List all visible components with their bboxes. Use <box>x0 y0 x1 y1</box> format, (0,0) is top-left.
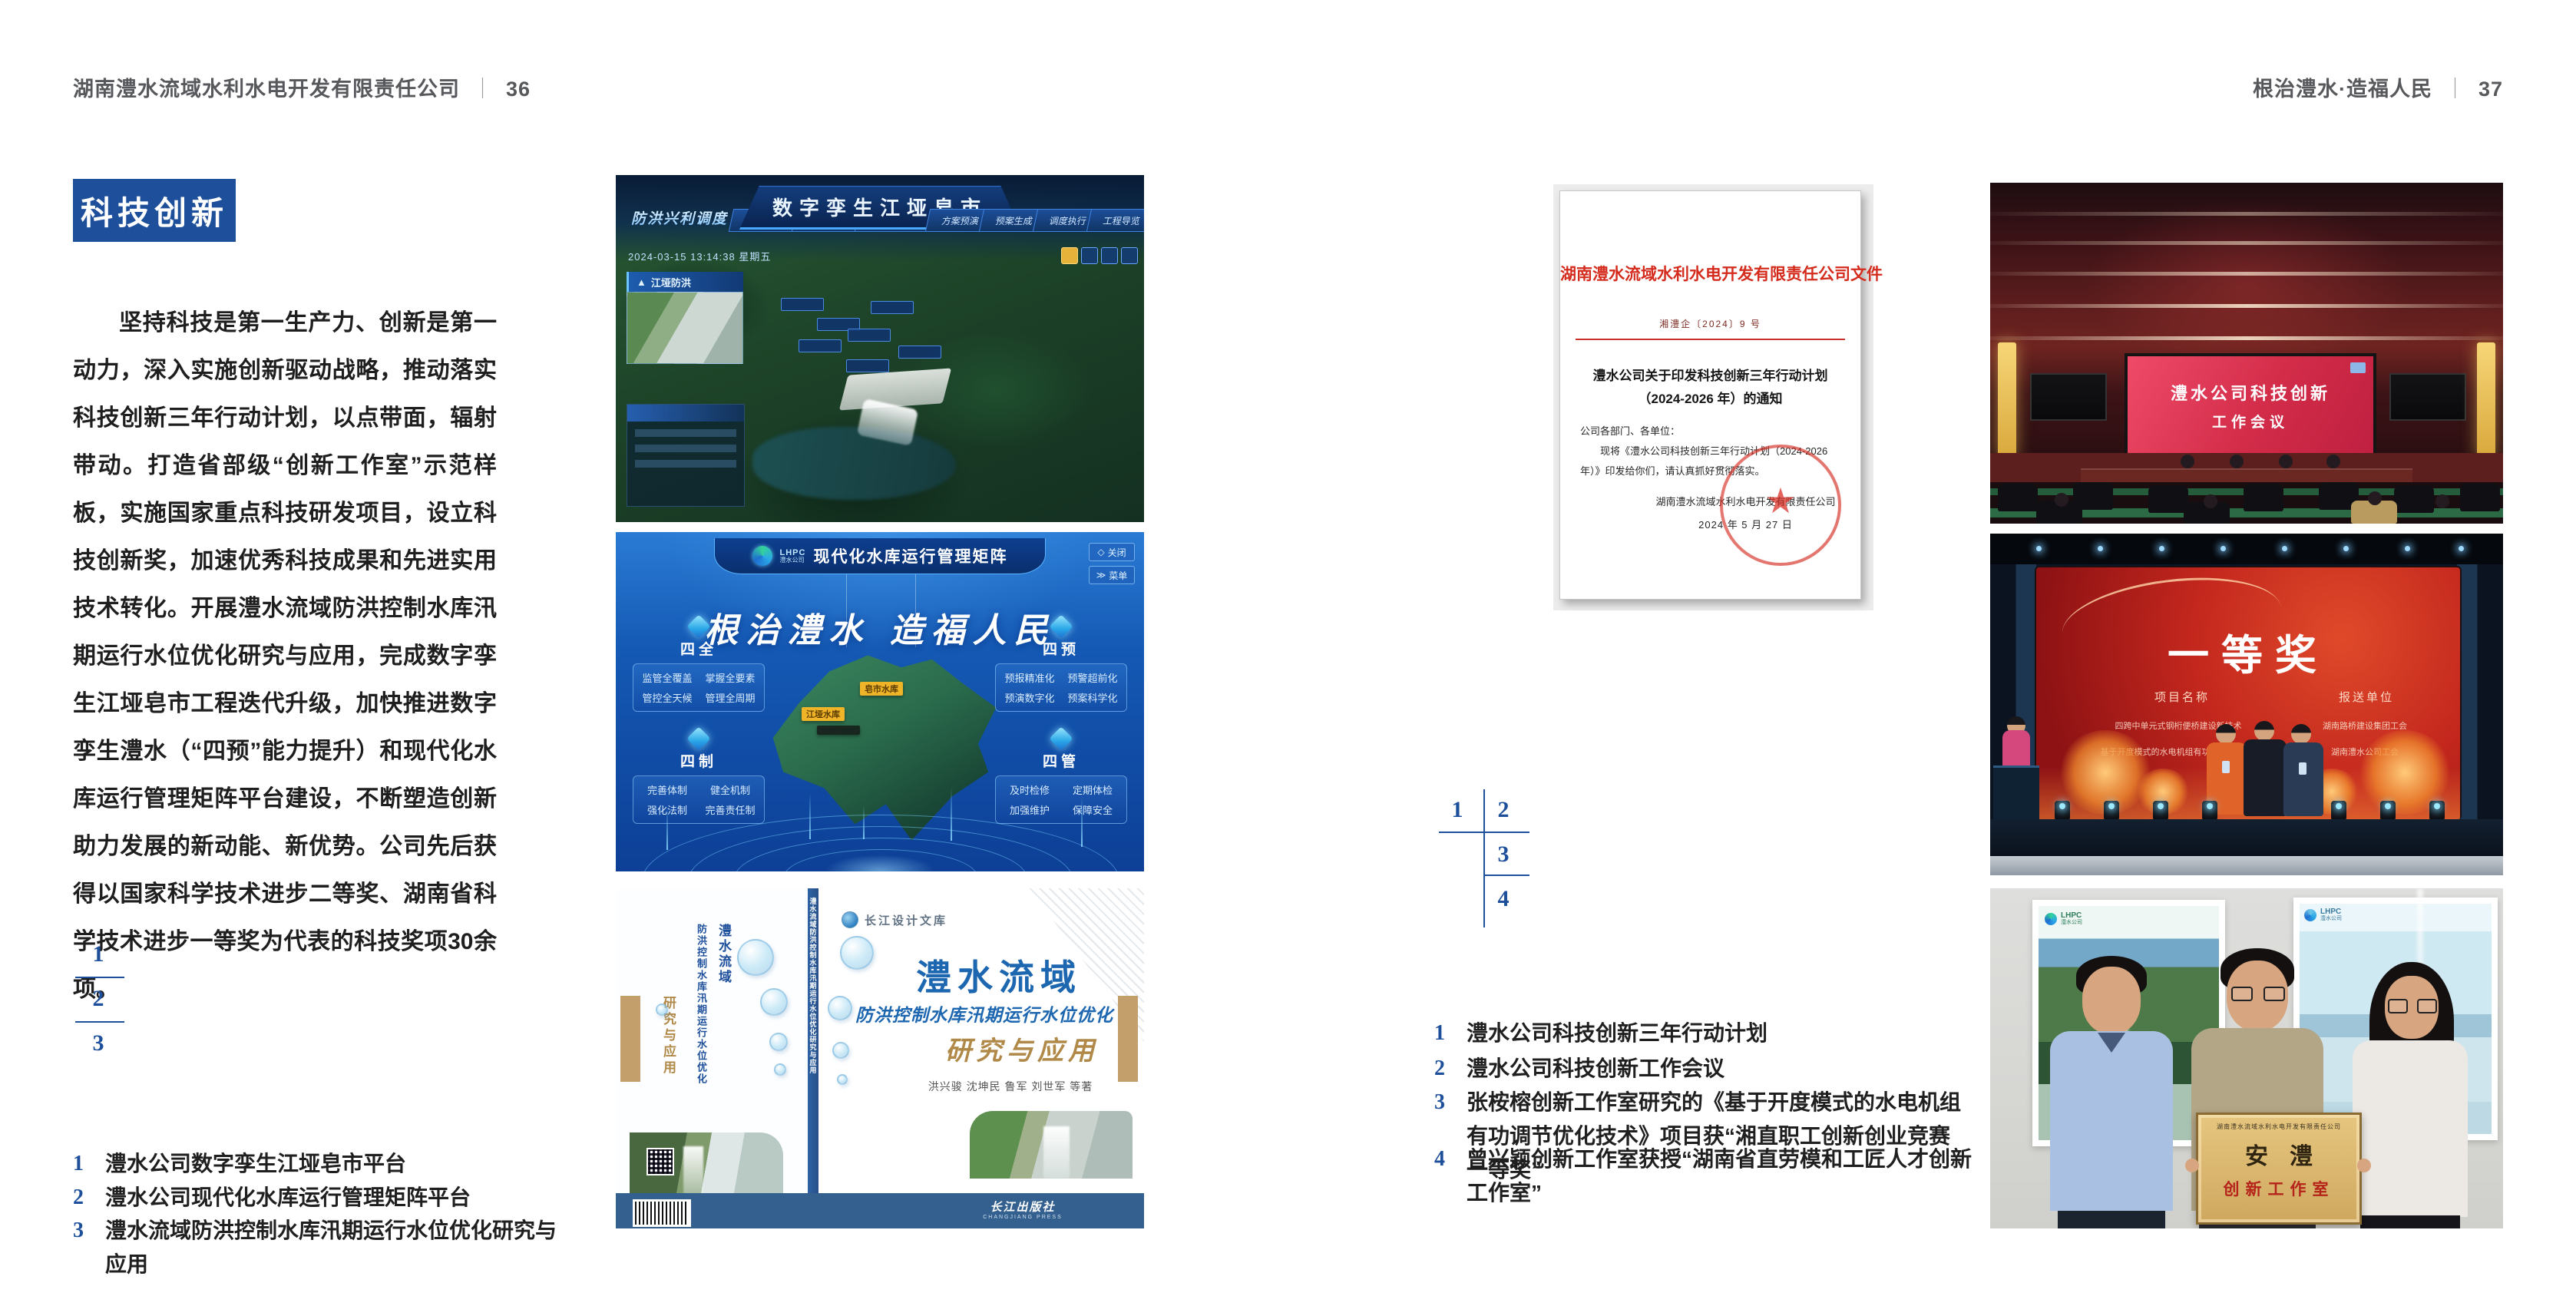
caption-text: 澧水公司科技创新工作会议 <box>1467 1052 1724 1086</box>
panelist-head <box>2279 455 2293 468</box>
stage-light <box>2098 546 2103 551</box>
series-name: 长江设计文库 <box>865 912 947 928</box>
card-item: 预报精准化 <box>999 670 1060 685</box>
logo-cn: 澧水公司 <box>2320 916 2342 921</box>
logo-en: LHPC <box>2320 908 2342 916</box>
stage-light <box>2405 546 2410 551</box>
caption-row: 3 澧水流域防洪控制水库汛期运行水位优化研究与应用 <box>73 1214 564 1281</box>
info-panel <box>627 404 745 507</box>
stage-light <box>2282 546 2287 551</box>
card-item: 完善责任制 <box>699 802 761 817</box>
matrix-card-siquan: 四全 监管全覆盖 掌握全要素 管控全天候 管理全周期 <box>633 618 765 712</box>
caption-number: 2 <box>73 1181 96 1215</box>
data-row <box>635 460 736 468</box>
photo-award-ceremony: 一等奖 项目名称 报送单位 四跨中单元式钢桁便桥建设新技术 湖南路桥建设集团工会… <box>1990 534 2503 875</box>
layers-icon <box>1081 247 1098 264</box>
index-divider-line <box>75 977 124 978</box>
card-title: 四制 <box>633 750 765 771</box>
floor-light-fixture <box>2429 801 2445 821</box>
audience-head <box>2368 491 2382 505</box>
water-droplet <box>828 996 852 1020</box>
book-back-cover: 澧水流域 防洪控制水库汛期运行水位优化 研究与应用 <box>616 888 808 1228</box>
water-droplet <box>760 988 788 1016</box>
user-icon <box>1061 247 1078 264</box>
map-marker <box>848 329 891 342</box>
card-item: 保障安全 <box>1062 802 1123 817</box>
water-droplet <box>832 1042 849 1059</box>
map-marker <box>846 359 889 372</box>
person-skirt <box>2360 1215 2460 1228</box>
person-trousers <box>2058 1211 2165 1228</box>
book-title-sub: 防洪控制水库汛期运行水位优化 <box>831 1000 1138 1027</box>
glasses-icon <box>2264 987 2285 1001</box>
floor-light-fixture <box>2380 801 2396 821</box>
matrix-card-siguan: 四管 及时检修 定期体检 加强维护 保障安全 <box>995 730 1127 824</box>
card-title: 四全 <box>633 638 765 659</box>
figure-index-3: 3 <box>83 1030 114 1056</box>
water-droplet <box>837 1074 848 1085</box>
matrix-card-siyu: 四预 预报精准化 预警超前化 预演数字化 预案科学化 <box>995 618 1127 712</box>
card-item: 预演数字化 <box>999 690 1060 705</box>
floor-light-fixture <box>2153 801 2168 821</box>
screen-title-line1: 澧水公司科技创新 <box>2171 380 2330 405</box>
panel-header: ▲江垭防洪 <box>627 272 743 292</box>
figure-digital-twin-platform: 防洪兴利调度 实时监测 洪水预报 防洪预警 数字孪生江垭皂市 方案预演 预案生成… <box>616 175 1144 522</box>
audience-chair <box>2148 485 2188 513</box>
cube-icon <box>1049 614 1073 638</box>
book-spread: 湖南澧水流域水利水电开发有限责任公司｜36 根治澧水·造福人民｜37 科技创新 … <box>0 0 2576 1306</box>
figure-index-4: 4 <box>1488 886 1519 912</box>
mode-label: 防洪兴利调度 <box>631 207 728 228</box>
light-pillar <box>809 793 811 839</box>
plaque-header: 湖南澧水流域水利水电开发有限责任公司 <box>2198 1122 2359 1131</box>
stage-floor <box>1990 819 2503 858</box>
column-header: 报送单位 <box>2282 689 2451 705</box>
caption-text: 澧水公司科技创新三年行动计划 <box>1467 1017 1767 1050</box>
floor-light-fixture <box>2104 801 2119 821</box>
stage-apron <box>1990 856 2503 875</box>
company-name: 湖南澧水流域水利水电开发有限责任公司 <box>73 78 460 101</box>
close-label: 关闭 <box>1108 546 1126 559</box>
map-marker <box>799 339 842 352</box>
light-pillar <box>666 807 668 850</box>
company-logo-icon <box>2045 913 2057 925</box>
header-divider: ｜ <box>2445 78 2466 101</box>
audience-head <box>2435 494 2449 508</box>
dam-thumbnail <box>627 292 743 364</box>
map-marker <box>781 298 824 311</box>
document-number: 湘澧企〔2024〕9 号 <box>1560 317 1860 330</box>
water-droplet <box>769 1033 788 1051</box>
caption-number: 4 <box>1434 1142 1457 1176</box>
light-pillar <box>863 805 865 839</box>
card-items: 监管全覆盖 掌握全要素 管控全天候 管理全周期 <box>633 663 765 712</box>
awardee-navy <box>2283 742 2323 816</box>
card-item: 预警超前化 <box>1062 670 1123 685</box>
waterfall <box>1043 1126 1070 1179</box>
fullscreen-icon <box>1121 247 1138 264</box>
poster-logo: LHPC澧水公司 <box>2045 912 2082 925</box>
logo-en: LHPC <box>780 549 806 557</box>
document-red-header: 湖南澧水流域水利水电开发有限责任公司文件 <box>1560 262 1860 285</box>
dashboard-header: LHPC 澧水公司 现代化水库运行管理矩阵 <box>714 538 1046 574</box>
audience-chair <box>2394 485 2434 513</box>
card-item: 健全机制 <box>699 782 761 797</box>
wall-display <box>2030 373 2107 421</box>
panelist-head <box>2326 455 2340 468</box>
audience-chair <box>2244 484 2283 511</box>
publisher-logo: 长江出版社 CHANGJIANG PRESS <box>950 1199 1096 1220</box>
document-salutation: 公司各部门、各单位： <box>1580 422 1845 441</box>
wall-lamp <box>1998 342 2016 458</box>
card-item: 管理全周期 <box>699 690 761 705</box>
ceiling-light-beam <box>1990 241 2503 245</box>
document-sheet: 湖南澧水流域水利水电开发有限责任公司文件 湘澧企〔2024〕9 号 澧水公司关于… <box>1559 190 1861 600</box>
stage-light <box>2221 546 2226 551</box>
caption-text: 澧水公司现代化水库运行管理矩阵平台 <box>105 1181 471 1215</box>
card-item: 完善体制 <box>637 782 698 797</box>
figure-official-document: 湖南澧水流域水利水电开发有限责任公司文件 湘澧企〔2024〕9 号 澧水公司关于… <box>1553 184 1873 610</box>
dam-structure <box>839 368 951 410</box>
matrix-card-sizhi: 四制 完善体制 健全机制 强化法制 完善责任制 <box>633 730 765 824</box>
figure-index-3: 3 <box>1488 841 1519 868</box>
ceiling-light-beam <box>1990 304 2503 308</box>
card-item: 及时检修 <box>999 782 1060 797</box>
person-shirt-white <box>2353 1040 2468 1217</box>
stage-truss <box>1990 534 2503 564</box>
caption-number: 1 <box>73 1147 96 1181</box>
official-seal: ★ <box>1720 445 1841 566</box>
stage-light <box>2343 546 2349 551</box>
person-hand <box>2185 1159 2199 1172</box>
card-items: 预报精准化 预警超前化 预演数字化 预案科学化 <box>995 663 1127 712</box>
downstream-water <box>752 427 956 500</box>
globe-icon <box>842 911 858 928</box>
ceiling-light-beam <box>1990 212 2503 216</box>
water-droplet <box>656 1003 668 1016</box>
awardee-head <box>2216 724 2236 744</box>
body-paragraph: 坚持科技是第一生产力、创新是第一动力，深入实施创新驱动战略，推动落实科技创新三年… <box>73 299 497 1013</box>
wall-lamp <box>2477 342 2495 458</box>
book-front-cover: 长江设计文库 澧水流域 防洪控制水库汛期运行水位优化 研究与应用 洪兴骏 沈坤民… <box>818 888 1144 1228</box>
light-pillar <box>951 787 952 841</box>
header-divider: ｜ <box>472 78 494 101</box>
company-logo-icon <box>2304 909 2316 921</box>
card-item: 加强维护 <box>999 802 1060 817</box>
figure-index-1: 1 <box>1442 797 1473 823</box>
light-pillar <box>1081 796 1083 847</box>
glasses-icon <box>2231 987 2253 1001</box>
floor-light-fixture <box>2331 801 2346 821</box>
running-header-right: 根治澧水·造福人民｜37 <box>2253 72 2503 102</box>
cover-accent-bar <box>620 996 640 1082</box>
stage-light <box>2459 546 2464 551</box>
card-title: 四预 <box>995 638 1127 659</box>
card-items: 完善体制 健全机制 强化法制 完善责任制 <box>633 775 765 824</box>
close-button: ◇关闭 <box>1089 543 1135 561</box>
map-marker <box>898 346 941 359</box>
logo-cn: 澧水公司 <box>2061 920 2082 925</box>
series-logo: 长江设计文库 <box>842 911 947 928</box>
card-title: 四管 <box>995 750 1127 771</box>
red-rule <box>1576 339 1846 340</box>
person-face <box>2082 967 2141 1034</box>
caption-row: 1 澧水公司数字孪生江垭皂市平台 <box>73 1147 549 1181</box>
chevrons-icon: ≫ <box>1096 570 1106 580</box>
panelist-head <box>2181 455 2194 468</box>
water-droplet <box>737 939 774 976</box>
ceiling-light-beam <box>1990 336 2503 340</box>
cube-icon <box>1049 726 1073 750</box>
studio-plaque: 湖南澧水流域水利水电开发有限责任公司 安澧 创新工作室 <box>2196 1113 2362 1225</box>
plaque-subtitle: 创新工作室 <box>2198 1177 2359 1200</box>
publisher-name-en: CHANGJIANG PRESS <box>950 1215 1096 1220</box>
column-header: 项目名称 <box>2098 689 2267 705</box>
company-logo-text: LHPC 澧水公司 <box>780 549 806 564</box>
audience-head <box>2055 493 2068 507</box>
audience-chair <box>2460 484 2500 511</box>
caption-row: 1 澧水公司科技创新三年行动计划 <box>1434 1017 1972 1050</box>
map-marker <box>871 301 914 314</box>
caption-number: 1 <box>1434 1017 1457 1050</box>
water-droplet <box>840 936 874 970</box>
poster-logo: LHPC澧水公司 <box>2304 908 2342 921</box>
trophy <box>2222 761 2230 773</box>
audience-chair <box>1998 484 2038 511</box>
book-authors: 洪兴骏 沈坤民 鲁军 刘世军 等著 <box>888 1079 1133 1094</box>
barcode <box>633 1199 691 1227</box>
dashboard-title: 现代化水库运行管理矩阵 <box>813 544 1007 567</box>
screen-title-line2: 工作会议 <box>2212 411 2289 431</box>
card-item: 定期体检 <box>1062 782 1123 797</box>
document-title: 澧水公司关于印发科技创新三年行动计划 （2024-2026 年）的通知 <box>1560 365 1860 411</box>
figure-index-2: 2 <box>83 986 114 1012</box>
logo-en: LHPC <box>2061 912 2082 920</box>
caption-row: 2 澧水公司科技创新工作会议 <box>1434 1052 1972 1086</box>
book-spine: 澧水流域防洪控制水库汛期运行水位优化研究与应用 <box>808 888 818 1228</box>
screen-logo <box>2350 362 2366 373</box>
figure-index-1: 1 <box>83 941 114 967</box>
data-row <box>635 445 736 452</box>
locate-icon <box>1101 247 1118 264</box>
glasses-icon <box>2417 999 2437 1013</box>
floor-light-fixture <box>2055 801 2070 821</box>
caption-text: 澧水流域防洪控制水库汛期运行水位优化研究与应用 <box>105 1214 564 1281</box>
presenter-suit <box>2244 739 2287 816</box>
document-title-line2: （2024-2026 年）的通知 <box>1560 388 1860 411</box>
index-vertical-line <box>1483 789 1485 927</box>
index-divider-line <box>1483 875 1529 876</box>
figure-management-matrix-platform: LHPC 澧水公司 现代化水库运行管理矩阵 ◇关闭 ≫菜单 根治澧水 造福人民 … <box>616 532 1144 871</box>
panel-header <box>627 405 744 422</box>
awardee-head <box>2291 724 2311 744</box>
page-number-right: 37 <box>2478 78 2503 101</box>
timestamp: 2024-03-15 13:14:38 星期五 <box>628 249 771 263</box>
ceiling-light-beam <box>1990 272 2503 276</box>
caption-text: 澧水公司数字孪生江垭皂市平台 <box>105 1147 406 1181</box>
caption-number: 2 <box>1434 1052 1457 1086</box>
nav-tab: 工程导览 <box>1086 209 1144 232</box>
page-number-left: 36 <box>506 78 531 101</box>
back-title-1: 澧水流域 <box>714 924 733 985</box>
slogan: 根治澧水·造福人民 <box>2253 78 2432 101</box>
glasses-icon <box>2388 999 2408 1013</box>
award-title: 一等奖 <box>2036 621 2460 682</box>
reservoir-label: 江垭水库 <box>802 707 845 721</box>
trophy <box>2299 762 2306 775</box>
book-title-main: 澧水流域 <box>865 950 1133 1000</box>
qr-code <box>646 1148 674 1175</box>
menu-button: ≫菜单 <box>1089 566 1135 584</box>
person-hand <box>2357 1159 2371 1172</box>
running-header-left: 湖南澧水流域水利水电开发有限责任公司｜36 <box>73 72 531 102</box>
reservoir-label: 皂市水库 <box>860 682 903 696</box>
figure-index-2: 2 <box>1488 797 1519 823</box>
flag-icon: ▲ <box>637 276 646 288</box>
caption-number: 3 <box>73 1214 96 1248</box>
spine-title: 澧水流域防洪控制水库汛期运行水位优化研究与应用 <box>809 898 818 1205</box>
wall-display <box>2389 373 2466 421</box>
plaque-name: 安澧 <box>2198 1137 2359 1171</box>
photo-innovation-meeting: 澧水公司科技创新 工作会议 <box>1990 183 2503 524</box>
dam-photo <box>970 1111 1133 1179</box>
panel-title: 江垭防洪 <box>651 275 691 289</box>
index-divider-line <box>75 1021 124 1023</box>
company-logo-icon <box>752 546 772 566</box>
caption-number: 3 <box>1434 1086 1457 1119</box>
station-label <box>817 726 860 735</box>
side-panel: ▲江垭防洪 <box>627 272 743 364</box>
audience-head <box>2204 494 2217 508</box>
meeting-screen: 澧水公司科技创新 工作会议 <box>2125 353 2376 458</box>
stage-light <box>2036 546 2042 551</box>
person-shirt-blue-polo <box>2050 1031 2173 1211</box>
panelist-head <box>2230 455 2244 468</box>
section-badge: 科技创新 <box>73 179 236 242</box>
menu-label: 菜单 <box>1109 569 1127 582</box>
card-item: 管控全天候 <box>637 690 698 705</box>
diamond-icon: ◇ <box>1097 547 1104 557</box>
publisher-name: 长江出版社 <box>950 1199 1096 1215</box>
figure-book-cover: 澧水流域 防洪控制水库汛期运行水位优化 研究与应用 澧水流域防洪控制水库汛期运行… <box>616 888 1144 1228</box>
seal-star-icon: ★ <box>1723 483 1838 518</box>
card-item: 掌握全要素 <box>699 670 761 685</box>
card-items: 及时检修 定期体检 加强维护 保障安全 <box>995 775 1127 824</box>
cube-icon <box>686 614 710 638</box>
book-title-accent: 研究与应用 <box>911 1030 1133 1067</box>
card-item: 预案科学化 <box>1062 690 1123 705</box>
back-title-2: 防洪控制水库汛期运行水位优化 <box>694 924 709 1085</box>
floor-light-fixture <box>2202 801 2217 821</box>
caption-row: 2 澧水公司现代化水库运行管理矩阵平台 <box>73 1181 549 1215</box>
index-divider-line <box>1439 832 1529 833</box>
waterfall <box>683 1146 703 1194</box>
water-droplet <box>774 1063 786 1076</box>
card-item: 监管全覆盖 <box>637 670 698 685</box>
photo-innovation-studio-group: LHPC澧水公司 LHPC澧水公司 <box>1990 888 2503 1228</box>
data-row <box>635 429 736 437</box>
document-title-line1: 澧水公司关于印发科技创新三年行动计划 <box>1560 365 1860 388</box>
stage-light <box>2159 546 2164 551</box>
cube-icon <box>686 726 710 750</box>
caption-row: 4 曾兴颖创新工作室获授“湖南省直劳模和工匠人才创新工作室” <box>1434 1142 1976 1210</box>
presenter-head <box>2254 721 2274 741</box>
caption-text: 曾兴颖创新工作室获授“湖南省直劳模和工匠人才创新工作室” <box>1467 1142 1976 1210</box>
logo-cn: 澧水公司 <box>780 557 806 564</box>
